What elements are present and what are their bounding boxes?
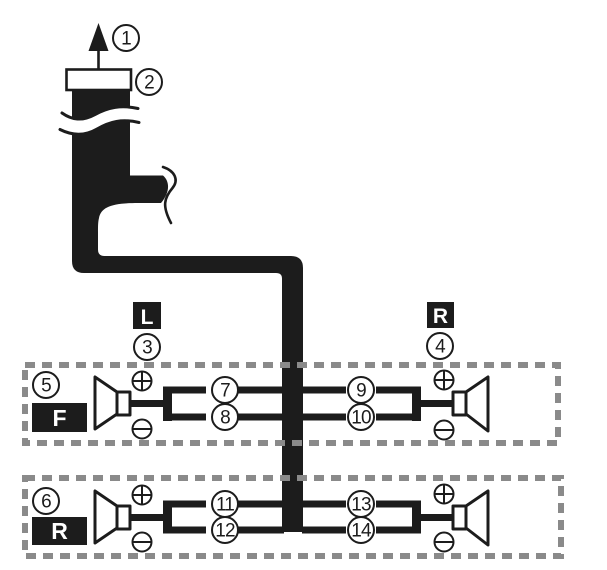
speaker-driver [453, 392, 466, 415]
svg-text:3: 3 [142, 338, 152, 359]
rear-right-minus-icon [435, 533, 454, 552]
front-left-minus-icon [133, 420, 152, 439]
badge-label: F [52, 405, 66, 431]
svg-text:8: 8 [220, 408, 230, 429]
rear-left-wire-split [163, 501, 172, 534]
svg-text:11: 11 [216, 495, 234, 516]
front-left-speaker-icon [95, 377, 130, 429]
front-left-wire-split [163, 387, 172, 422]
speaker-driver [117, 506, 130, 529]
svg-text:6: 6 [41, 492, 51, 513]
speaker-cone [95, 491, 117, 543]
connector-block [67, 70, 132, 91]
svg-text:9: 9 [356, 381, 366, 402]
svg-text:2: 2 [144, 73, 154, 94]
svg-text:12: 12 [215, 521, 235, 542]
callout-10: 10 [348, 404, 374, 430]
callout-7: 7 [212, 377, 238, 403]
svg-text:13: 13 [351, 495, 371, 516]
rear-left-wiring [129, 504, 284, 530]
front-right-minus-icon [435, 421, 454, 440]
svg-text:10: 10 [351, 408, 371, 429]
callout-2: 2 [136, 69, 162, 95]
speaker-cone [466, 491, 488, 545]
rear-row-badge: R [32, 517, 87, 545]
front-right-speaker-icon [453, 377, 488, 431]
callout-14: 14 [348, 517, 374, 543]
up-arrow-icon [89, 23, 109, 71]
speaker-driver [117, 392, 130, 415]
rear-right-wiring [302, 504, 454, 530]
callout-6: 6 [33, 488, 59, 514]
svg-text:4: 4 [435, 337, 446, 358]
front-row-badge: F [32, 403, 87, 432]
callout-1: 1 [113, 25, 139, 51]
speaker-driver [453, 506, 466, 529]
front-right-wire-split [412, 387, 421, 422]
rear-right-speaker-icon [453, 491, 488, 545]
front-left-wiring [129, 390, 284, 417]
callout-3: 3 [134, 334, 160, 360]
front-right-plus-icon [435, 371, 454, 390]
callout-9: 9 [348, 377, 374, 403]
harness-cable [72, 85, 303, 532]
svg-text:7: 7 [220, 381, 230, 402]
svg-text:14: 14 [351, 521, 372, 542]
rear-right-plus-icon [435, 485, 454, 504]
right-channel-badge: R [427, 302, 454, 328]
badge-label: R [51, 518, 68, 544]
rear-left-speaker-icon [95, 491, 130, 543]
speaker-cone [466, 377, 488, 431]
callout-11: 11 [212, 491, 238, 517]
wiring-diagram: L R F R 1 2 3 4 5 6 7 8 9 10 [0, 0, 607, 570]
callout-8: 8 [212, 404, 238, 430]
rear-left-minus-icon [133, 533, 152, 552]
callout-12: 12 [212, 517, 238, 543]
front-left-plus-icon [133, 372, 152, 391]
speaker-cone [95, 377, 117, 429]
rear-right-wire-split [412, 501, 421, 534]
callout-4: 4 [427, 333, 453, 359]
callout-13: 13 [348, 491, 374, 517]
diagram-canvas: L R F R 1 2 3 4 5 6 7 8 9 10 [0, 0, 607, 570]
rear-left-plus-icon [133, 486, 152, 505]
badge-label: L [141, 306, 154, 329]
svg-text:5: 5 [41, 376, 51, 397]
arrow-head [89, 23, 109, 51]
svg-text:1: 1 [121, 29, 131, 50]
left-channel-badge: L [133, 302, 161, 329]
front-right-wiring [302, 390, 454, 417]
callout-5: 5 [33, 372, 59, 398]
badge-label: R [433, 305, 448, 328]
